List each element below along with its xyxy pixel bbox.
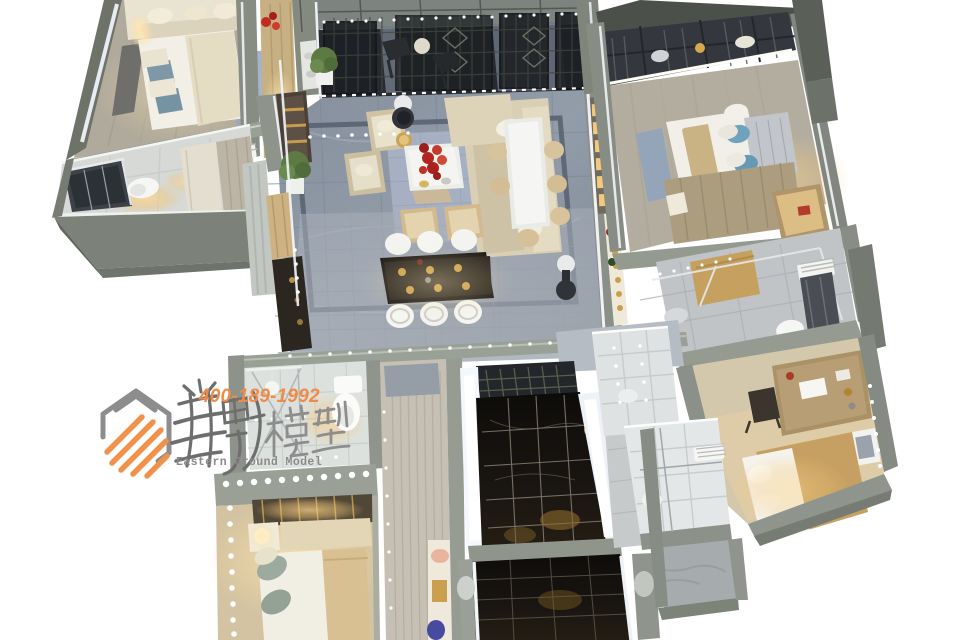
svg-text:400-189-1992: 400-189-1992 [198,386,320,407]
svg-text:Eastern Ground Model: Eastern Ground Model [176,456,322,469]
